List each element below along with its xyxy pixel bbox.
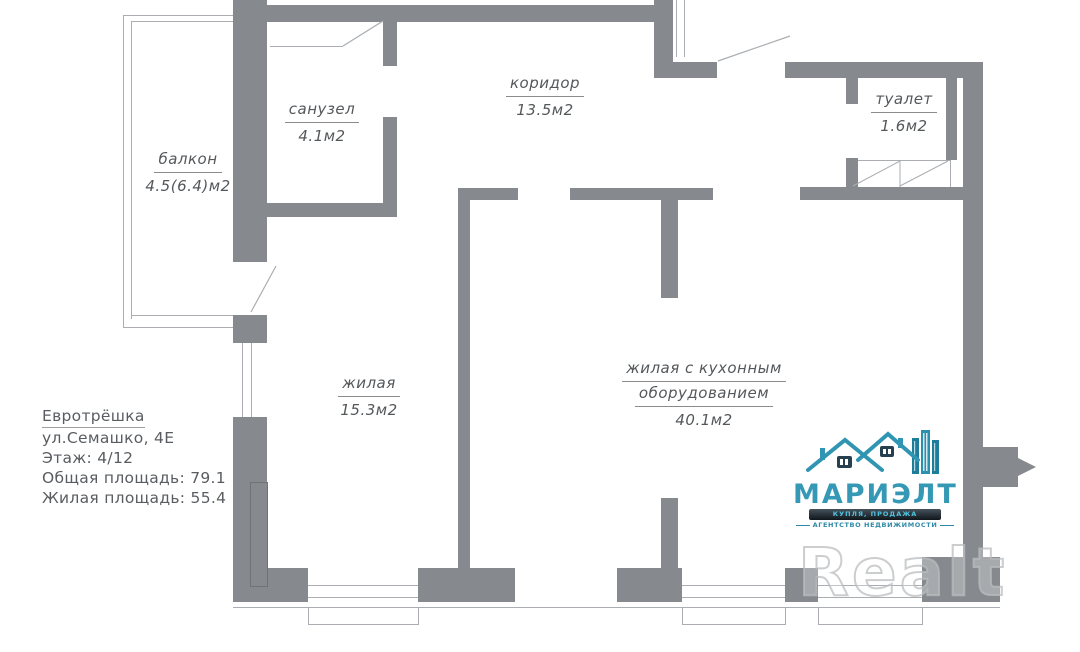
window-glass-line	[682, 597, 785, 598]
agency-logo: МАРИЭЛТ КУПЛЯ, ПРОДАЖА АГЕНТСТВО НЕДВИЖИ…	[793, 426, 957, 529]
room-label-corridor: коридор 13.5м2	[478, 72, 612, 122]
floorplan-canvas: балкон 4.5(6.4)м2 санузел 4.1м2 коридор …	[0, 0, 1080, 652]
wall-entry-top-b	[785, 62, 976, 78]
info-living-area: Жилая площадь: 55.4	[42, 488, 226, 508]
window-glass-line	[308, 585, 418, 586]
logo-name: МАРИЭЛТ	[793, 482, 957, 508]
wall-bathroom-right-upper	[383, 20, 397, 66]
room-name-line2: оборудованием	[635, 382, 773, 407]
window-glass-line	[308, 597, 418, 598]
wall-top-outer	[250, 5, 658, 22]
room-area: 15.3м2	[310, 397, 428, 422]
section-marker-arrow	[1018, 458, 1036, 476]
tagline-dash	[940, 525, 954, 526]
apartment-info: Евротрёшка ул.Семашко, 4Е Этаж: 4/12 Общ…	[42, 406, 226, 508]
window-sill-box	[682, 607, 786, 625]
wall-entry-party	[654, 0, 673, 78]
balcony-window-line	[242, 343, 243, 417]
wall-bottom-pier-1	[233, 568, 308, 602]
wall-bottom-pier-2	[418, 568, 515, 602]
logo-houses-icon	[800, 426, 950, 478]
balcony-outline-bottom-inner	[131, 315, 233, 316]
info-floor: Этаж: 4/12	[42, 448, 226, 468]
balcony-outline-top-outer	[123, 15, 250, 16]
wall-toilet-stub-lower	[846, 158, 858, 188]
bathroom-door-swing	[343, 21, 383, 46]
room-label-living-kitchen: жилая с кухонным оборудованием 40.1м2	[608, 357, 800, 432]
room-area: 1.6м2	[845, 113, 963, 138]
wall-room-divider	[458, 188, 470, 568]
wall-kitchen-upper	[661, 200, 678, 298]
wall-entry-top-a	[673, 62, 717, 78]
room-label-toilet: туалет 1.6м2	[845, 88, 963, 138]
room-name: санузел	[285, 98, 359, 123]
vent-shaft-box	[852, 160, 951, 189]
entrance-door-swing	[718, 36, 790, 61]
tagline-text: АГЕНТСТВО НЕДВИЖИМОСТИ	[813, 521, 938, 529]
wall-toilet-bottom	[800, 187, 963, 200]
room-area: 4.1м2	[258, 123, 386, 148]
room-label-balcony: балкон 4.5(6.4)м2	[118, 148, 258, 198]
wall-bottom-pier-3	[617, 568, 682, 602]
radiator-niche	[250, 482, 268, 587]
wall-left-outer-block	[233, 315, 267, 343]
balcony-outline-bottom-outer	[123, 327, 233, 328]
room-name: балкон	[154, 148, 221, 173]
wall-corridor-bottom-right	[570, 188, 713, 200]
window-glass-line	[682, 585, 785, 586]
info-address: ул.Семашко, 4Е	[42, 428, 226, 448]
room-area: 4.5(6.4)м2	[118, 173, 258, 198]
info-title: Евротрёшка	[42, 406, 145, 428]
room-label-bathroom: санузел 4.1м2	[258, 98, 386, 148]
room-name: туалет	[871, 88, 936, 113]
room-area: 13.5м2	[478, 97, 612, 122]
room-name: жилая с кухонным	[622, 357, 786, 382]
entrance-frame-line	[684, 0, 685, 57]
room-name: жилая	[338, 372, 400, 397]
info-total-area: Общая площадь: 79.1	[42, 468, 226, 488]
realt-watermark: Realt	[798, 534, 1007, 611]
room-label-living: жилая 15.3м2	[310, 372, 428, 422]
wall-bathroom-bottom	[267, 203, 397, 217]
wall-right-protrusion	[982, 447, 1018, 487]
bathroom-door-line	[270, 46, 343, 47]
room-name: коридор	[506, 72, 584, 97]
room-area: 40.1м2	[608, 407, 800, 432]
balcony-door-swing	[251, 266, 276, 312]
tagline-dash	[796, 525, 810, 526]
entrance-frame-line	[676, 0, 677, 57]
logo-tagline: АГЕНТСТВО НЕДВИЖИМОСТИ	[793, 521, 957, 529]
balcony-window-line	[251, 343, 252, 417]
window-sill-box	[308, 607, 419, 625]
logo-banner: КУПЛЯ, ПРОДАЖА	[809, 509, 941, 520]
wall-kitchen-lower	[661, 498, 678, 568]
wall-right-outer	[963, 62, 983, 602]
